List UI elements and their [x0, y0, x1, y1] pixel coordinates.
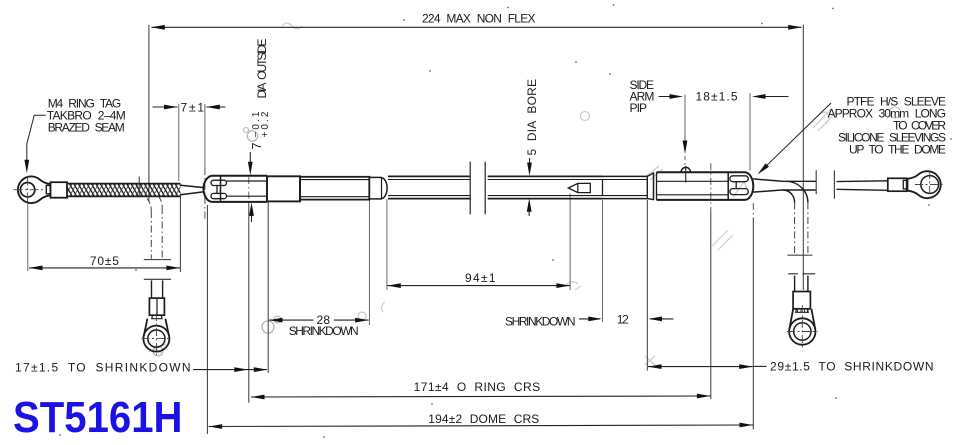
- svg-text:7±1: 7±1: [181, 101, 205, 115]
- svg-text:UP TO THE DOME: UP TO THE DOME: [849, 142, 947, 156]
- svg-text:SHRINKDOWN: SHRINKDOWN: [289, 324, 360, 338]
- svg-text:BRAZED SEAM: BRAZED SEAM: [48, 120, 126, 134]
- svg-text:5 DIA BORE: 5 DIA BORE: [525, 79, 539, 156]
- svg-text:224 MAX NON FLEX: 224 MAX NON FLEX: [422, 12, 536, 26]
- svg-text:12: 12: [617, 312, 630, 326]
- svg-text:17±1.5 TO SHRINKDOWN: 17±1.5 TO SHRINKDOWN: [15, 360, 191, 374]
- svg-text:29±1.5 TO SHRINKDOWN: 29±1.5 TO SHRINKDOWN: [770, 359, 934, 373]
- svg-text:94±1: 94±1: [465, 271, 496, 285]
- svg-text:−0.1: −0.1: [251, 111, 262, 137]
- svg-text:194±2 DOME CRS: 194±2 DOME CRS: [428, 412, 540, 426]
- svg-text:171±4 O RING CRS: 171±4 O RING CRS: [414, 380, 541, 394]
- svg-text:SHRINKDOWN: SHRINKDOWN: [505, 314, 576, 328]
- svg-text:70±5: 70±5: [90, 254, 120, 268]
- svg-text:7: 7: [250, 143, 264, 150]
- svg-text:18±1.5: 18±1.5: [696, 89, 739, 103]
- svg-text:DIA OUTSIDE: DIA OUTSIDE: [255, 38, 269, 99]
- svg-text:PIP: PIP: [630, 101, 648, 115]
- svg-text:ST5161H: ST5161H: [13, 393, 183, 442]
